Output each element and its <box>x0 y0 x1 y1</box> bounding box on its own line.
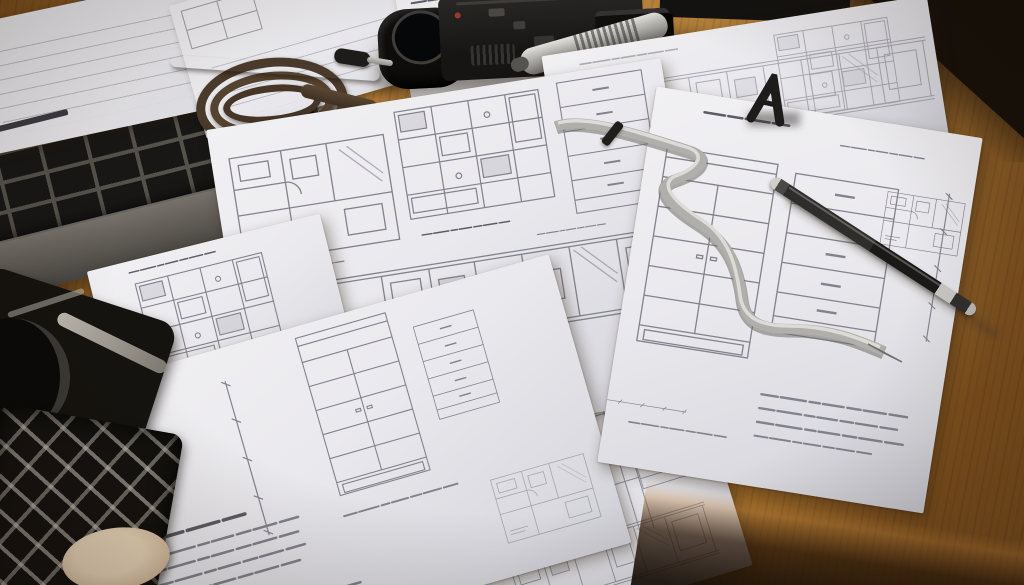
camcorder-button <box>488 8 504 17</box>
knife-handle <box>333 47 371 67</box>
knife-blade <box>367 57 394 67</box>
desk-scene <box>0 0 1024 585</box>
camcorder-speaker-grille <box>470 44 515 66</box>
camcorder-button <box>513 21 525 30</box>
form-table-box <box>181 0 263 49</box>
